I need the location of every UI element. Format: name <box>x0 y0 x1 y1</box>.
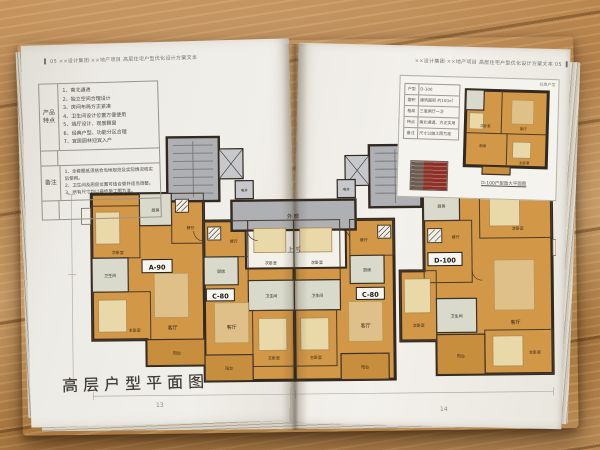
room-label-dining: 餐厅 <box>452 233 460 239</box>
table-tail-row <box>42 198 160 220</box>
shaft-label: 电井 <box>241 188 249 193</box>
bed-icon <box>489 198 519 226</box>
corridor-label: 外廊 <box>287 212 300 220</box>
window-hatch-icon <box>428 229 442 243</box>
rug-icon <box>214 303 248 343</box>
room-label-dining: 餐厅 <box>187 224 195 230</box>
bed-icon <box>493 336 523 366</box>
remarks-list: 1、全套图纸须结合当地规范及实际情况核实后使用。 2、卫生间及厨房位置可结合管井… <box>60 163 160 201</box>
unit-detail-inset-card: 经典户型 户型 D-100 面积 建筑面积 约100㎡ 格局 三室两厅一卫 特点… <box>396 75 559 201</box>
window-hatch-icon <box>378 225 391 238</box>
window-hatch-icon <box>175 199 188 212</box>
room-label-living: 客厅 <box>168 324 178 331</box>
room-label-second-bedroom: 次卧室 <box>512 225 524 231</box>
unit-badge-label: C-80 <box>362 291 379 299</box>
rug-icon <box>154 273 188 317</box>
bed-icon <box>512 142 530 158</box>
remark-item: 3、所有尺寸均以最终施工图为准。 <box>65 188 156 198</box>
bed-icon <box>98 300 126 332</box>
window-hatch-icon <box>208 227 221 240</box>
inset-unit-plan-svg: 次卧室 客厅 主卧室 厨房 <box>458 84 555 179</box>
inset-unit-plan: 次卧室 客厅 主卧室 厨房 <box>458 84 555 183</box>
remarks-section-label: 备注 <box>41 166 61 201</box>
room-label-kitchen: 厨房 <box>363 266 371 272</box>
room-label-master-bedroom: 主卧室 <box>529 349 541 355</box>
inset-table-row: 面积 建筑面积 约100㎡ <box>405 94 459 107</box>
features-section: 产品特点 1、南北通透 2、独立空间合理设计 3、房间布局方正紧凑 4、卫生间设… <box>39 81 159 150</box>
room-label-living: 客厅 <box>227 324 237 331</box>
bed-icon <box>404 279 430 313</box>
room-label-second-bedroom: 次卧室 <box>413 322 425 328</box>
room-label-living: 客厅 <box>511 319 521 326</box>
rug-icon <box>348 301 382 341</box>
room-label-bath: 卫生间 <box>311 292 323 298</box>
inset-table-row: 特点 南北通透、方正实用 <box>404 116 458 129</box>
room-label-second-bedroom: 次卧室 <box>311 259 323 265</box>
room-label-dining: 餐厅 <box>360 236 368 242</box>
bed-icon <box>301 318 329 350</box>
room-label-dining: 餐厅 <box>230 238 238 244</box>
room-label-master-bedroom: 主卧室 <box>519 160 530 165</box>
product-features-table: 产品特点 1、南北通透 2、独立空间合理设计 3、房间布局方正紧凑 4、卫生间设… <box>38 80 162 221</box>
room-label-living: 客厅 <box>361 322 371 329</box>
room-label-second-bedroom: 次卧室 <box>112 249 124 255</box>
bed-icon <box>259 318 287 350</box>
photo-scene: ▌ 05 ××设计集团·××地产项目 高层住宅户型优化设计方案文本 ××设计集团… <box>0 0 600 450</box>
room-label-bath: 卫生间 <box>451 312 463 318</box>
room-label-kitchen: 厨房 <box>217 268 225 274</box>
room-label-master-bedroom: 主卧室 <box>268 354 280 360</box>
inset-table-row: 格局 三室两厅一卫 <box>405 105 459 118</box>
inset-caption: D-100户型放大平面图 <box>456 179 552 188</box>
right-page-number: 14 <box>440 406 448 413</box>
rug-icon <box>494 260 535 310</box>
remarks-section: 备注 1、全套图纸须结合当地规范及实际情况核实后使用。 2、卫生间及厨房位置可结… <box>41 162 160 201</box>
bed-icon <box>254 228 286 252</box>
room-label-bath: 卫生间 <box>104 272 116 278</box>
rug-icon <box>511 100 534 125</box>
unit-badge-label: A-90 <box>149 263 166 271</box>
inset-table-row: 户型 D-100 <box>405 84 459 96</box>
ac-platform <box>553 239 556 255</box>
plan-title: 高层户型平面图 <box>62 368 210 397</box>
room-label-kitchen: 厨房 <box>437 203 445 209</box>
inset-info-table: 户型 D-100 面积 建筑面积 约100㎡ 格局 三室两厅一卫 特点 南北通透… <box>403 83 461 141</box>
room-label-master-bedroom: 主卧室 <box>310 354 322 360</box>
building-elevation-thumbnail <box>410 160 449 191</box>
room-label-bath: 卫生间 <box>265 292 277 298</box>
room-label-master-bedroom: 主卧室 <box>129 327 141 333</box>
room-label-balcony: 阳台 <box>225 365 233 371</box>
unit-badge-label: C-80 <box>212 292 229 300</box>
room-label-balcony: 阳台 <box>361 363 369 369</box>
room-label-second-bedroom: 次卧室 <box>265 259 277 265</box>
shaft-label: 电井 <box>343 187 351 192</box>
features-list: 1、南北通透 2、独立空间合理设计 3、房间布局方正紧凑 4、卫生间设计位置方便… <box>58 81 159 149</box>
room-label-balcony: 阳台 <box>457 352 465 358</box>
feature-item: 7、宜居园林迎宾入户 <box>64 135 155 146</box>
room-label-second-bedroom: 次卧室 <box>480 123 491 128</box>
bed-icon <box>300 228 332 252</box>
inset-table-row: 备注 尺寸以施工图为准 <box>404 127 458 140</box>
room-label-kitchen: 厨房 <box>479 143 487 148</box>
room-label-balcony: 阳台 <box>173 349 181 355</box>
features-section-label: 产品特点 <box>39 84 60 150</box>
room-label-living: 客厅 <box>520 126 528 131</box>
unit-badge-label: D-100 <box>434 256 456 264</box>
stair-core-left <box>167 137 244 202</box>
